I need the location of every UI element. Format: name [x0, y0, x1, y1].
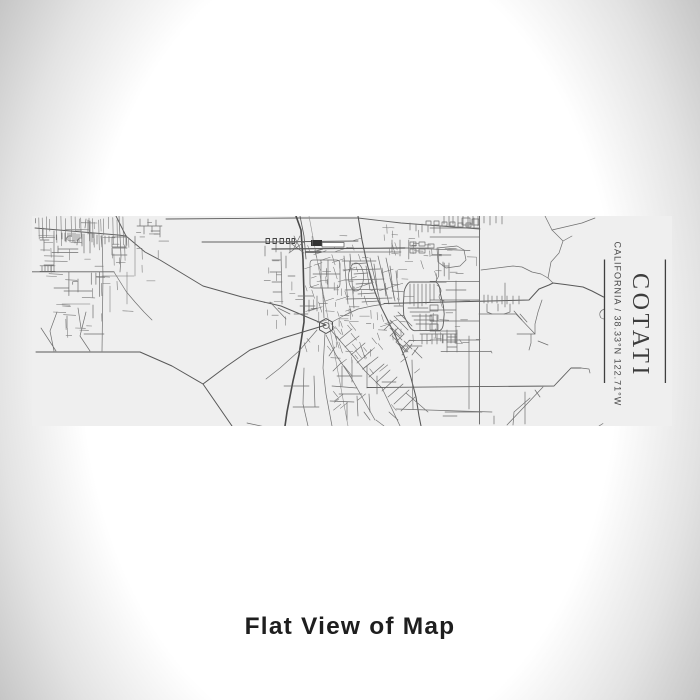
svg-text:CALIFORNIA / 38.33°N 122.71°W: CALIFORNIA / 38.33°N 122.71°W [613, 242, 623, 407]
svg-text:COTATI: COTATI [627, 273, 653, 378]
